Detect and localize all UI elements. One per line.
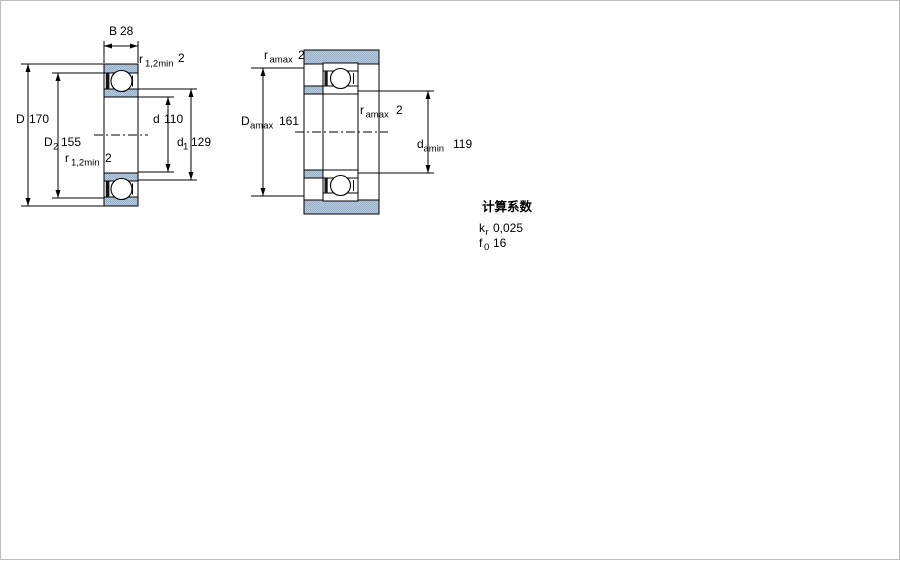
dim-ramax-inner-sub: amax — [366, 110, 389, 121]
dim-ramax-inner: r amax 2 — [360, 103, 403, 121]
bearing-body — [94, 64, 148, 206]
dim-d1-sub: 1 — [183, 142, 188, 153]
calculation-factors-title: 计算系数 — [482, 199, 533, 214]
cross-section-view: B 28 r 1,2min 2 D 170 D 2 15 — [16, 24, 211, 206]
dim-d1: d 1 129 — [138, 89, 211, 180]
dim-d-symbol: d — [153, 112, 160, 126]
drawing-svg: B 28 r 1,2min 2 D 170 D 2 15 — [1, 1, 900, 561]
dim-B-value: 28 — [120, 24, 134, 38]
dim-D2-sub: 2 — [53, 142, 58, 153]
mounted-ball-bottom — [331, 176, 351, 196]
mounted-seal-top — [325, 71, 328, 86]
dim-B: B 28 — [104, 24, 138, 63]
shaft-shoulder-bottom — [304, 170, 323, 178]
factor-row-f0: f 0 16 — [479, 236, 507, 253]
ball-top — [111, 71, 132, 92]
calculation-factors: 计算系数 k r 0,025 f 0 16 — [479, 199, 533, 253]
dim-D-value: 170 — [29, 112, 49, 126]
dim-r12min-bottom-symbol: r — [65, 151, 69, 165]
mounting-view: r amax 2 D amax 161 r amax 2 — [241, 48, 472, 214]
dim-ramax-inner-symbol: r — [360, 103, 364, 117]
dim-r12min-bottom-value: 2 — [105, 151, 112, 165]
dim-D2-value: 155 — [61, 135, 81, 149]
mounted-bearing — [295, 63, 388, 201]
dim-ramax-top: r amax 2 — [264, 48, 305, 66]
dim-D-symbol: D — [16, 112, 25, 126]
dim-r12min-top-value: 2 — [178, 51, 185, 65]
dim-Damax-sub: amax — [250, 121, 273, 132]
dim-damin-value: 119 — [453, 137, 472, 151]
housing-top — [304, 50, 379, 64]
dim-D: D 170 — [16, 64, 104, 206]
dim-r12min-bottom-sub: 1,2min — [71, 158, 100, 169]
dim-Damax-symbol: D — [241, 114, 250, 128]
dim-r12min-top-sub: 1,2min — [145, 59, 174, 70]
factor-f0-sub: 0 — [484, 242, 489, 253]
seal-bottom — [106, 181, 110, 197]
dim-Damax: D amax 161 — [241, 68, 304, 196]
factor-kr-value: 0,025 — [493, 221, 523, 235]
dim-ramax-top-value: 2 — [298, 48, 305, 62]
factor-f0-value: 16 — [493, 236, 507, 250]
dim-r12min-top-symbol: r — [139, 52, 143, 66]
dim-ramax-top-symbol: r — [264, 48, 268, 62]
dim-d-value: 110 — [164, 112, 183, 126]
mounted-ball-top — [331, 69, 351, 89]
shaft-shoulder-top — [304, 86, 323, 94]
dim-B-symbol: B — [109, 24, 117, 38]
bearing-dimension-drawing: B 28 r 1,2min 2 D 170 D 2 15 — [0, 0, 900, 560]
mounted-seal-bottom — [325, 178, 328, 193]
dim-r12min-top: r 1,2min 2 — [139, 51, 185, 70]
dim-ramax-top-sub: amax — [270, 55, 293, 66]
dim-damin-sub: amin — [424, 144, 445, 155]
dim-Damax-value: 161 — [279, 114, 299, 128]
dim-ramax-inner-value: 2 — [396, 103, 403, 117]
ball-bottom — [111, 179, 132, 200]
dim-D2-symbol: D — [44, 135, 53, 149]
factor-kr-sub: r — [486, 227, 489, 238]
seal-top — [106, 73, 110, 89]
housing-bottom — [304, 200, 379, 214]
factor-f0-symbol: f — [479, 236, 483, 250]
dim-d1-value: 129 — [191, 135, 211, 149]
